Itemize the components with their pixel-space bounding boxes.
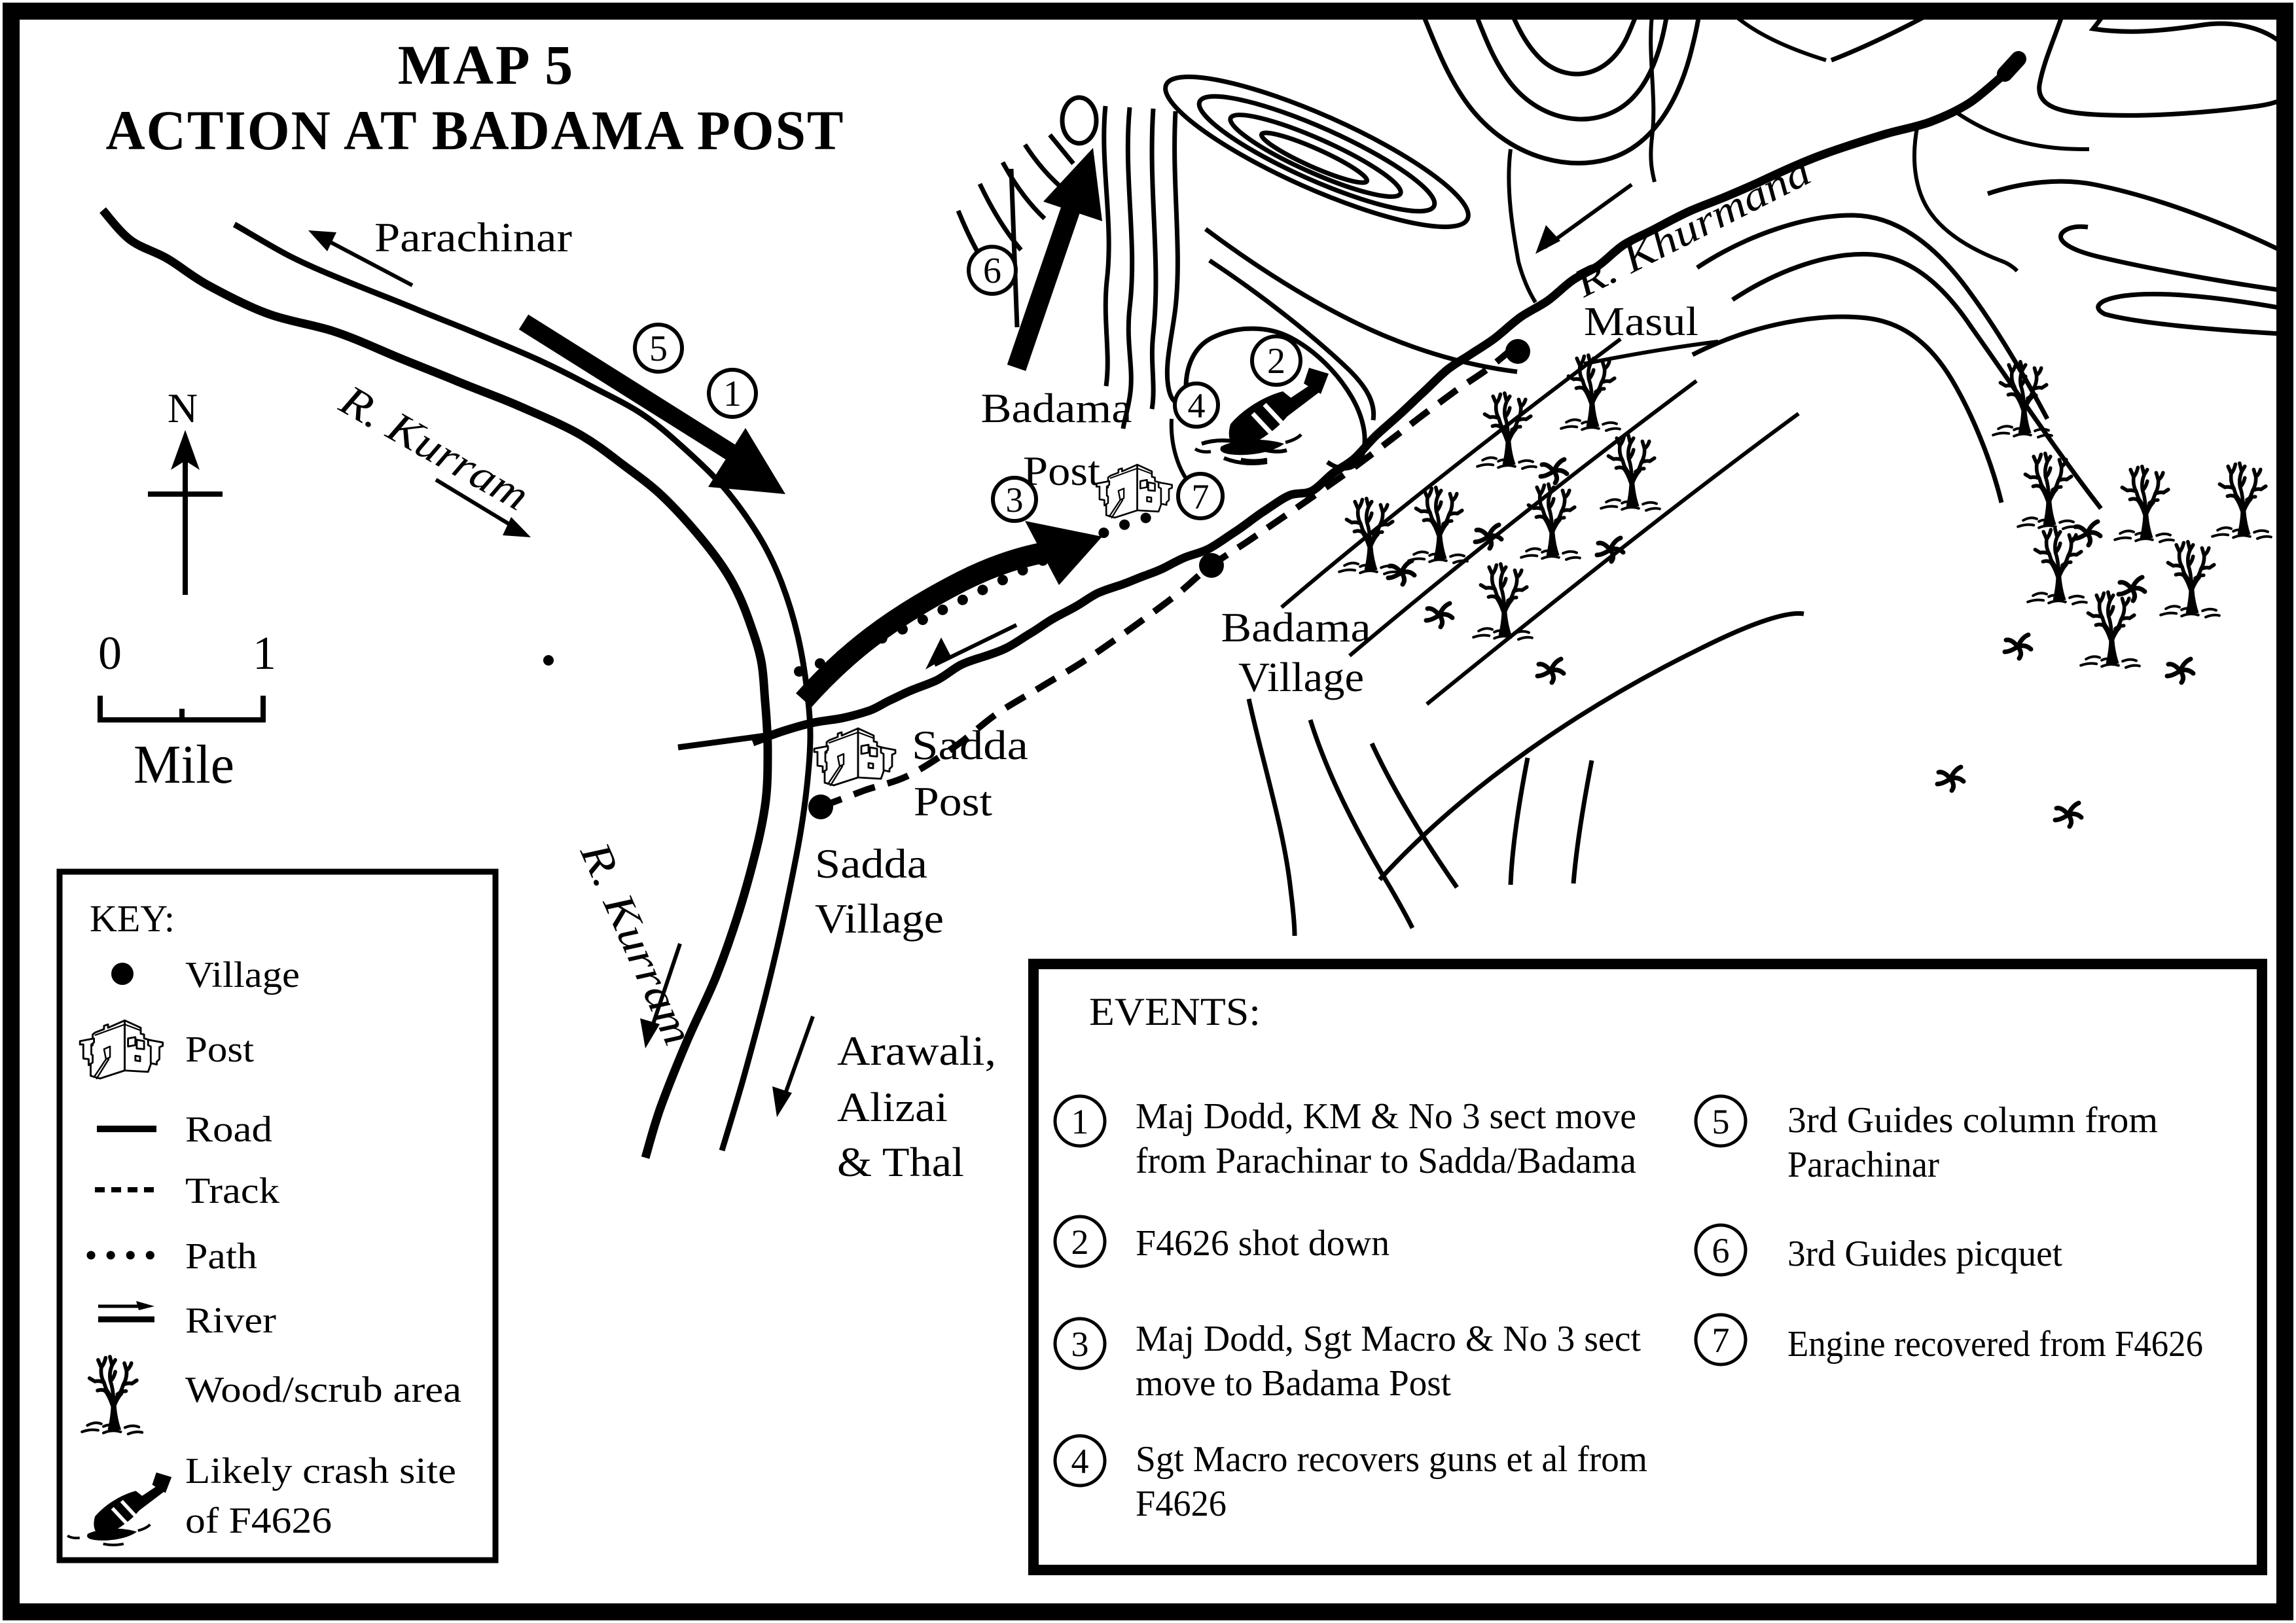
svg-text:Likely crash site: Likely crash site xyxy=(185,1451,456,1491)
svg-text:Wood/scrub area: Wood/scrub area xyxy=(185,1370,461,1410)
svg-text:Parachinar: Parachinar xyxy=(374,214,572,260)
svg-text:Sadda: Sadda xyxy=(912,722,1028,768)
svg-text:Village: Village xyxy=(815,895,944,942)
svg-text:N: N xyxy=(168,385,198,431)
svg-text:6: 6 xyxy=(1712,1231,1730,1270)
svg-text:0: 0 xyxy=(98,627,122,679)
svg-text:3: 3 xyxy=(1071,1325,1089,1364)
svg-text:MAP 5: MAP 5 xyxy=(398,33,575,96)
svg-text:River: River xyxy=(185,1300,276,1341)
svg-text:Sadda: Sadda xyxy=(815,840,927,887)
svg-text:Mile: Mile xyxy=(134,734,234,795)
svg-text:2: 2 xyxy=(1071,1222,1089,1262)
svg-text:EVENTS:: EVENTS: xyxy=(1089,990,1261,1033)
svg-text:Road: Road xyxy=(185,1109,272,1150)
svg-text:3: 3 xyxy=(1006,480,1024,520)
svg-text:F4626: F4626 xyxy=(1136,1484,1227,1524)
svg-text:Engine recovered from F4626: Engine recovered from F4626 xyxy=(1787,1324,2203,1364)
svg-text:of F4626: of F4626 xyxy=(185,1501,332,1541)
svg-text:Parachinar: Parachinar xyxy=(1787,1145,1939,1185)
svg-text:move to Badama Post: move to Badama Post xyxy=(1136,1363,1451,1404)
svg-text:7: 7 xyxy=(1712,1321,1730,1360)
svg-text:Alizai: Alizai xyxy=(837,1084,948,1130)
svg-text:4: 4 xyxy=(1188,386,1206,425)
svg-text:KEY:: KEY: xyxy=(90,897,175,940)
svg-text:Masul: Masul xyxy=(1584,300,1698,344)
svg-text:6: 6 xyxy=(983,251,1001,291)
svg-text:5: 5 xyxy=(1712,1102,1730,1141)
svg-text:2: 2 xyxy=(1267,341,1285,382)
svg-text:1: 1 xyxy=(253,627,276,679)
svg-text:Maj Dodd, KM & No 3 sect move: Maj Dodd, KM & No 3 sect move xyxy=(1136,1096,1636,1137)
svg-text:Sgt Macro recovers guns et al: Sgt Macro recovers guns et al from xyxy=(1136,1439,1647,1480)
svg-text:Village: Village xyxy=(1238,654,1364,700)
svg-text:5: 5 xyxy=(649,329,668,369)
svg-text:ACTION AT BADAMA POST: ACTION AT BADAMA POST xyxy=(106,99,845,162)
svg-text:7: 7 xyxy=(1192,477,1210,516)
svg-text:Maj Dodd, Sgt Macro & No 3 sec: Maj Dodd, Sgt Macro & No 3 sect xyxy=(1136,1319,1641,1359)
svg-text:Path: Path xyxy=(185,1236,257,1277)
svg-text:1: 1 xyxy=(1071,1102,1089,1141)
svg-text:Village: Village xyxy=(185,955,300,995)
svg-text:Post: Post xyxy=(914,778,992,825)
svg-text:3rd Guides column from: 3rd Guides column from xyxy=(1787,1100,2158,1141)
svg-text:Badama: Badama xyxy=(981,385,1132,431)
svg-text:& Thal: & Thal xyxy=(837,1139,964,1185)
svg-text:from Parachinar to Sadda/Badam: from Parachinar to Sadda/Badama xyxy=(1136,1141,1636,1181)
svg-text:Post: Post xyxy=(185,1029,254,1070)
svg-text:Arawali,: Arawali, xyxy=(837,1027,996,1074)
svg-text:Track: Track xyxy=(185,1171,279,1211)
svg-text:4: 4 xyxy=(1071,1442,1089,1481)
svg-text:Badama: Badama xyxy=(1221,604,1371,651)
svg-text:F4626 shot down: F4626 shot down xyxy=(1136,1223,1390,1264)
svg-text:3rd Guides picquet: 3rd Guides picquet xyxy=(1787,1234,2062,1274)
svg-text:1: 1 xyxy=(723,374,742,414)
